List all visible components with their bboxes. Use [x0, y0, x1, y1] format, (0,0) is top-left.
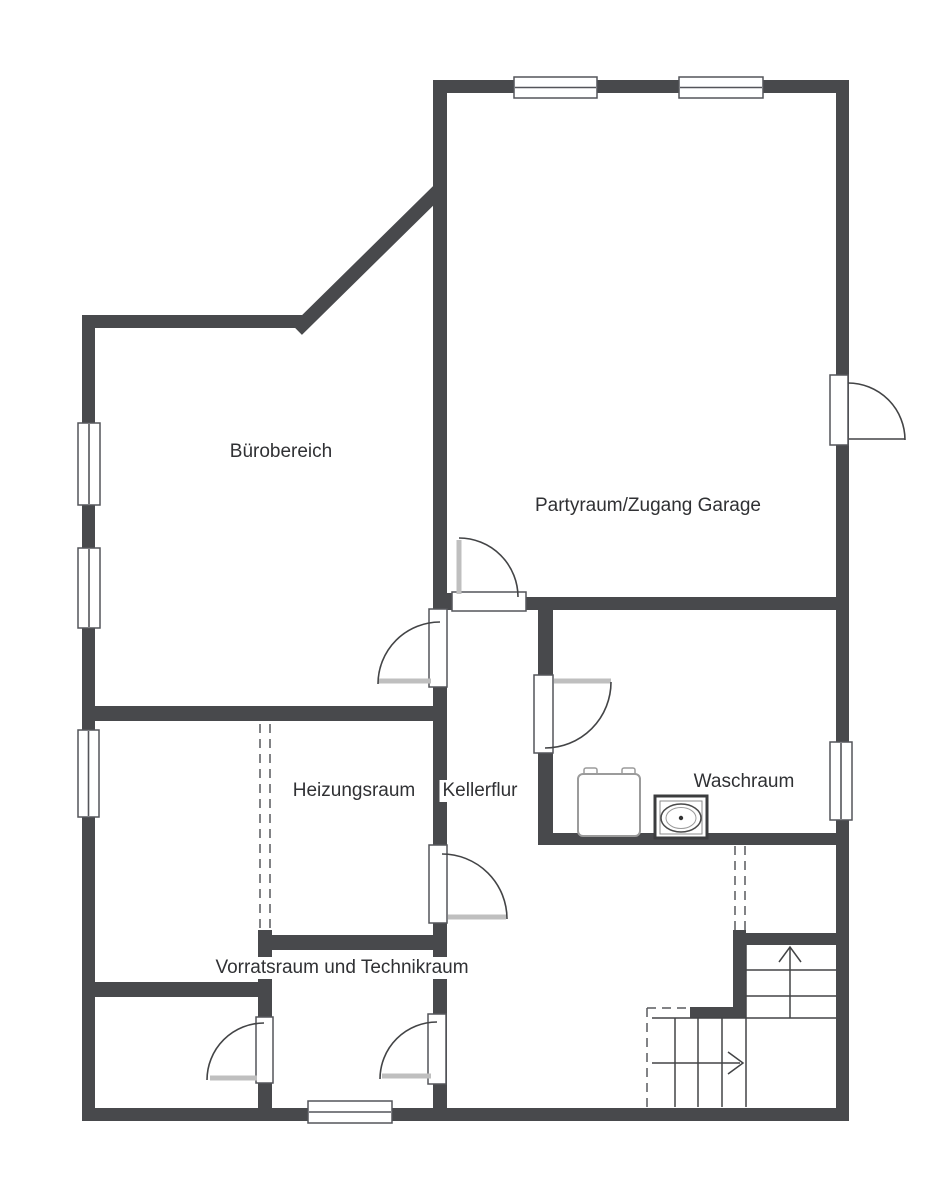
door-vorratsraum — [207, 1017, 273, 1083]
wall-left-horizontal — [95, 982, 272, 997]
room-label-partyraum: Partyraum/Zugang Garage — [532, 495, 764, 517]
door-technikraum — [380, 1014, 446, 1084]
wall-diagonal — [302, 193, 436, 325]
door-waschraum — [534, 675, 611, 753]
window-left-1 — [78, 423, 100, 505]
wall-heizung-vorrat — [272, 935, 447, 950]
room-label-heizungsraum: Heizungsraum — [290, 780, 419, 802]
door-partyraum — [452, 538, 526, 611]
washing-machine-icon — [655, 796, 707, 838]
window-right-1 — [830, 742, 852, 820]
room-label-vorratsraum: Vorratsraum und Technikraum — [212, 957, 471, 979]
room-label-waschraum: Waschraum — [691, 771, 798, 793]
wall-stair-top — [733, 933, 836, 945]
wall-buero-bottom — [95, 706, 447, 721]
window-left-2 — [78, 548, 100, 628]
boiler-icon — [578, 768, 640, 836]
window-bottom-1 — [308, 1101, 392, 1123]
floor-plan: Bürobereich Partyraum/Zugang Garage Heiz… — [0, 0, 928, 1200]
room-label-kellerflur: Kellerflur — [440, 780, 521, 802]
wall-stair-stub — [690, 1007, 734, 1018]
wall-bottom — [82, 1108, 849, 1121]
door-kellerflur — [429, 845, 507, 923]
door-buerobereich — [378, 609, 447, 687]
wall-topleft-horizontal — [82, 315, 302, 328]
window-top-1 — [514, 77, 597, 98]
window-left-3 — [78, 730, 99, 817]
room-label-buerobereich: Bürobereich — [227, 441, 335, 463]
door-exterior-right — [830, 375, 905, 445]
wall-top — [433, 80, 849, 93]
floor-plan-drawing — [0, 0, 928, 1200]
window-top-2 — [679, 77, 763, 98]
